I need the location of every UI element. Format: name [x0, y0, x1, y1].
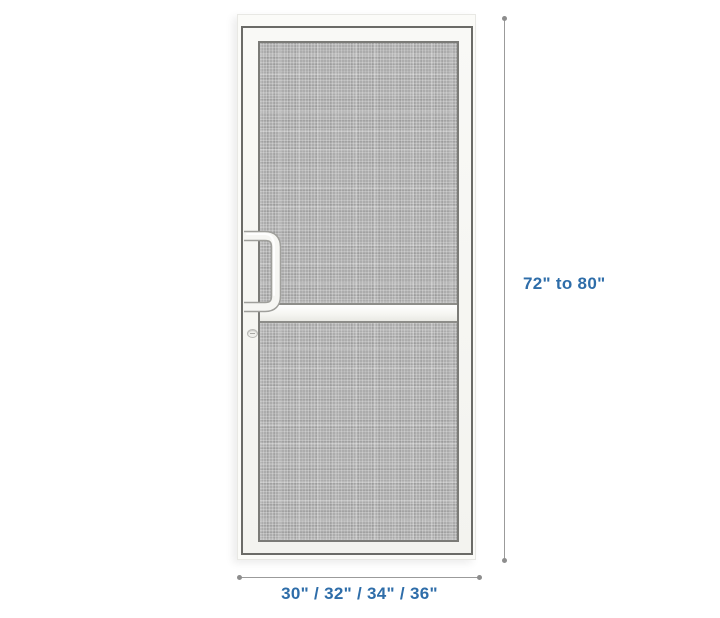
height-dimension-label: 72" to 80": [523, 274, 605, 294]
middle-rail: [260, 303, 457, 323]
pull-handle-icon: [241, 225, 289, 325]
width-dimension-line: [239, 577, 480, 578]
screen-door: [237, 14, 476, 560]
top-mesh-panel: [260, 43, 457, 303]
lock-cylinder-icon: [247, 329, 258, 338]
product-illustration: 72" to 80" 30" / 32" / 34" / 36": [0, 0, 720, 618]
height-dimension-line: [504, 18, 505, 561]
bottom-mesh-panel: [260, 323, 457, 540]
width-dimension-label: 30" / 32" / 34" / 36": [239, 584, 480, 604]
